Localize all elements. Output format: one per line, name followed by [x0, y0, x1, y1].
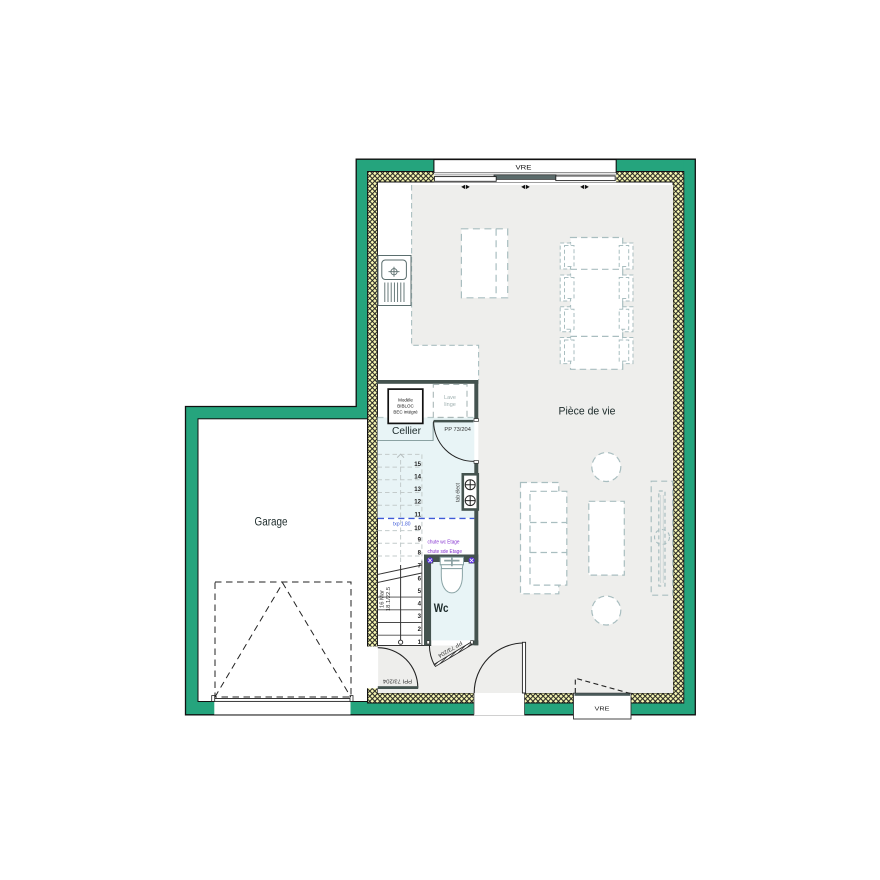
- svg-text:18.1/22.5: 18.1/22.5: [386, 587, 392, 611]
- svg-text:16 Mar: 16 Mar: [380, 590, 386, 608]
- svg-text:chute sde Etage: chute sde Etage: [428, 549, 463, 555]
- svg-text:12: 12: [414, 498, 421, 505]
- svg-text:linge: linge: [444, 402, 456, 408]
- svg-text:txp 1.80: txp 1.80: [393, 521, 411, 527]
- svg-text:chute wc Etage: chute wc Etage: [428, 539, 460, 545]
- svg-text:Modèle: Modèle: [398, 398, 413, 403]
- svg-text:10: 10: [414, 525, 421, 532]
- svg-text:Cellier: Cellier: [392, 426, 422, 437]
- svg-text:tab élect: tab élect: [456, 482, 462, 502]
- svg-text:14: 14: [414, 473, 421, 480]
- svg-text:11: 11: [415, 512, 422, 519]
- svg-text:Wc: Wc: [434, 603, 449, 615]
- svg-text:BEC intégré: BEC intégré: [393, 410, 418, 415]
- svg-text:Pièce de vie: Pièce de vie: [559, 405, 616, 417]
- svg-text:13: 13: [414, 486, 421, 493]
- svg-text:VRE: VRE: [595, 707, 610, 713]
- svg-text:BIBLOC: BIBLOC: [397, 404, 414, 409]
- svg-text:Lave: Lave: [444, 395, 456, 401]
- svg-text:PP 73/204: PP 73/204: [444, 427, 471, 433]
- svg-text:Garage: Garage: [255, 517, 288, 529]
- svg-text:15: 15: [414, 461, 421, 468]
- svg-text:PPI 73/204: PPI 73/204: [383, 677, 412, 683]
- svg-text:VRE: VRE: [516, 165, 532, 171]
